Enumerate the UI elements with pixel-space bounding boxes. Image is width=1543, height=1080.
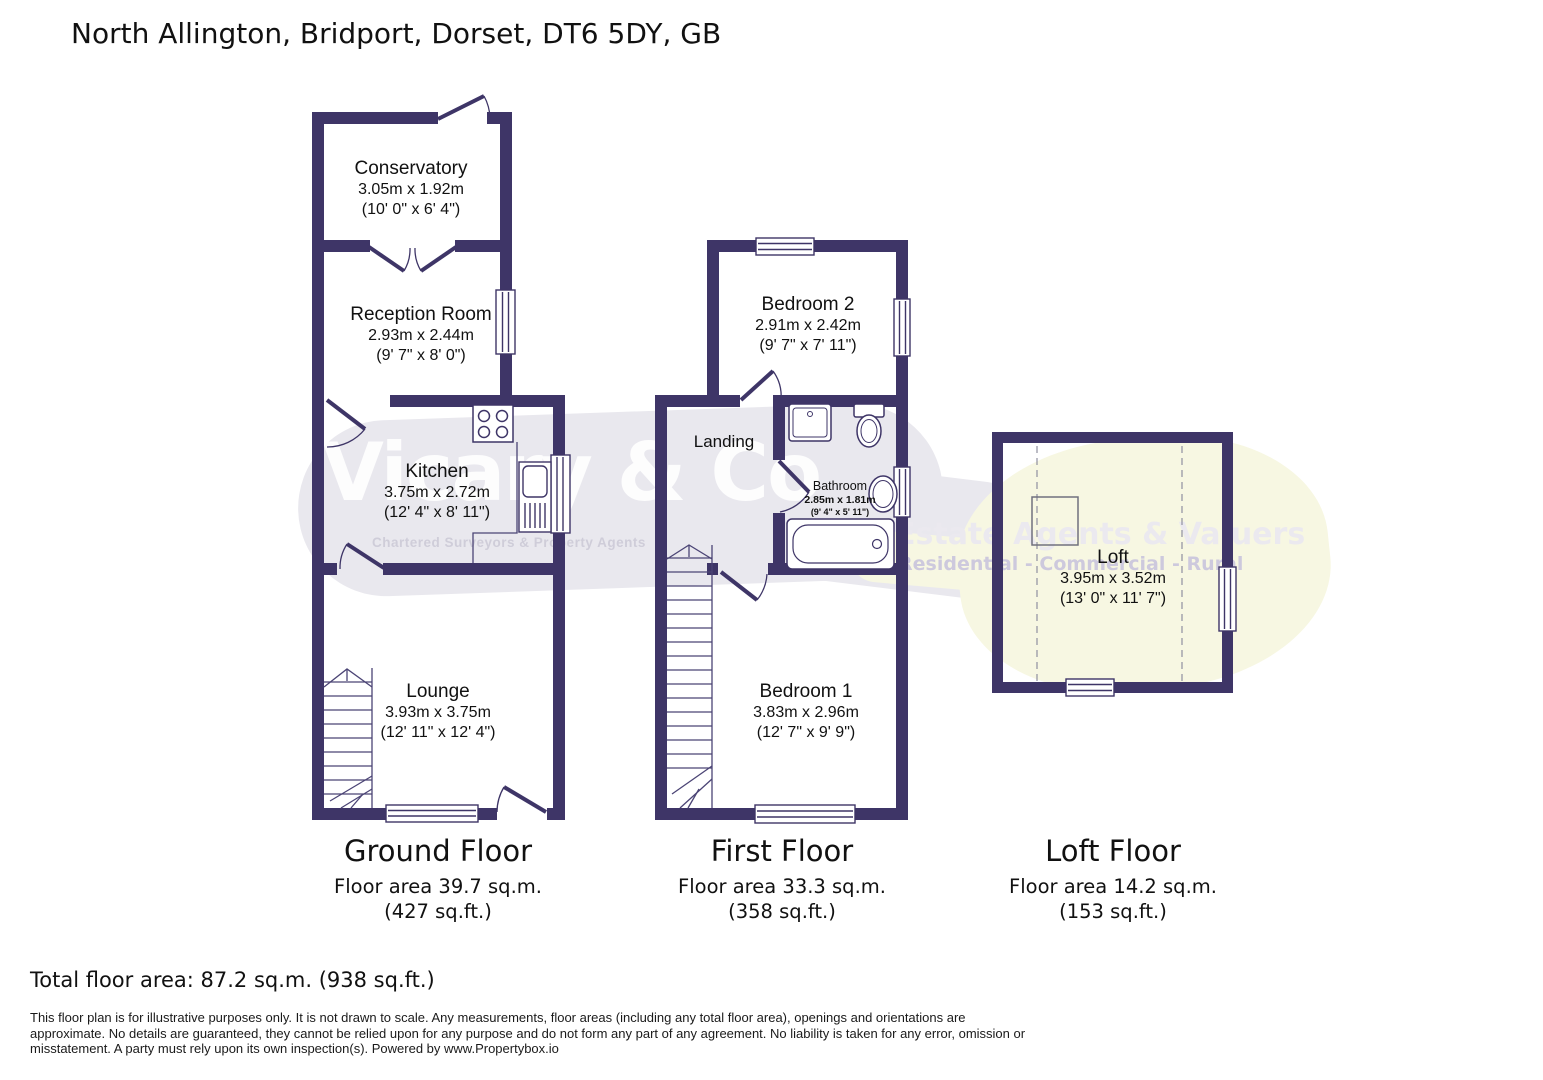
total-floor-area: Total floor area: 87.2 sq.m. (938 sq.ft.… (30, 968, 435, 992)
disclaimer-line-3: misstatement. A party must rely upon its… (30, 1041, 1025, 1057)
room-label-loft: Loft 3.95m x 3.52m (13' 0" x 11' 7") (1013, 546, 1213, 608)
loft-hatch (1032, 497, 1078, 545)
room-label-landing: Landing (664, 432, 784, 453)
room-label-bedroom2: Bedroom 2 2.91m x 2.42m (9' 7" x 7' 11") (708, 293, 908, 355)
caption-ground-floor: Ground Floor (313, 834, 563, 868)
room-label-kitchen: Kitchen 3.75m x 2.72m (12' 4" x 8' 11") (337, 460, 537, 522)
first-floor-stairs (667, 545, 712, 808)
toilet-icon (854, 404, 884, 447)
caption-first-floor-area: Floor area 33.3 sq.m. (358 sq.ft.) (657, 874, 907, 924)
caption-loft-floor-area: Floor area 14.2 sq.m. (153 sq.ft.) (988, 874, 1238, 924)
caption-first-floor: First Floor (657, 834, 907, 868)
disclaimer-line-1: This floor plan is for illustrative purp… (30, 1010, 1025, 1026)
bathtub-icon (787, 519, 894, 569)
hob-icon (473, 405, 513, 442)
room-label-bathroom: Bathroom 2.85m x 1.81m (9' 4" x 5' 11") (780, 479, 900, 518)
room-label-conservatory: Conservatory 3.05m x 1.92m (10' 0" x 6' … (311, 157, 511, 219)
room-label-bedroom1: Bedroom 1 3.83m x 2.96m (12' 7" x 9' 9") (706, 680, 906, 742)
caption-ground-floor-area: Floor area 39.7 sq.m. (427 sq.ft.) (313, 874, 563, 924)
room-label-lounge: Lounge 3.93m x 3.75m (12' 11" x 12' 4") (338, 680, 538, 742)
disclaimer-line-2: approximate. No details are guaranteed, … (30, 1026, 1025, 1042)
room-label-reception: Reception Room 2.93m x 2.44m (9' 7" x 8'… (310, 303, 532, 365)
caption-loft-floor: Loft Floor (988, 834, 1238, 868)
page-title: North Allington, Bridport, Dorset, DT6 5… (71, 17, 721, 50)
disclaimer: This floor plan is for illustrative purp… (30, 1010, 1025, 1057)
floorplan-page: North Allington, Bridport, Dorset, DT6 5… (0, 0, 1543, 1080)
bathroom-sink-icon (789, 404, 831, 441)
